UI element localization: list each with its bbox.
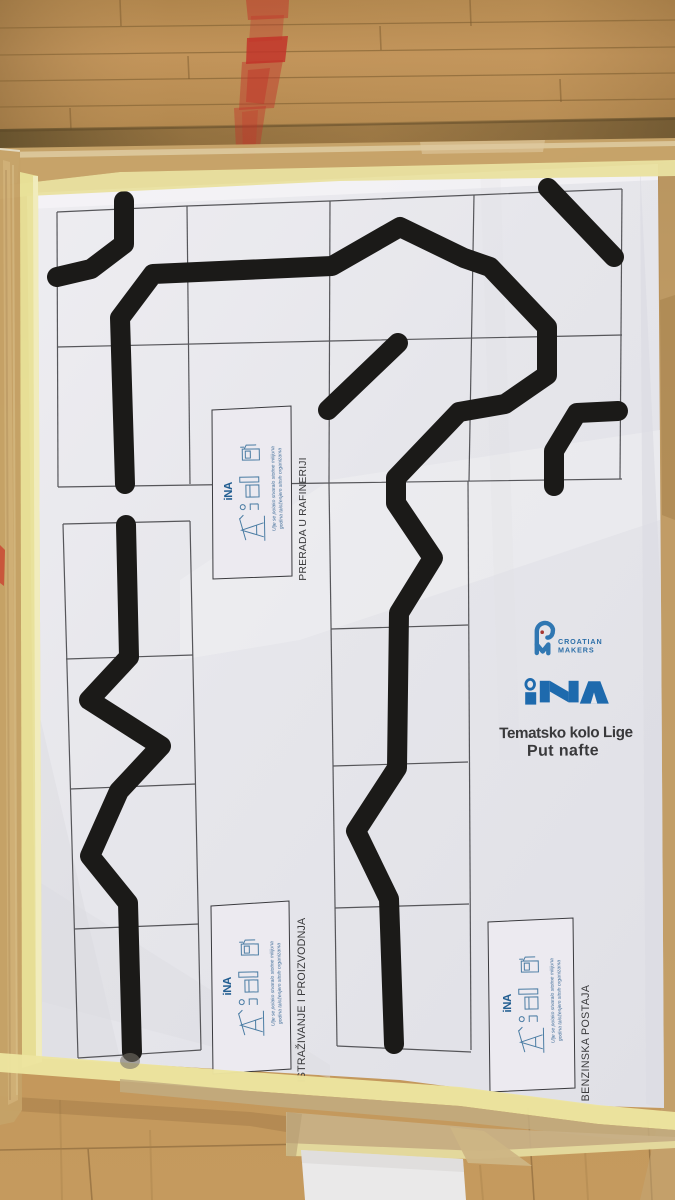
svg-text:MAKERS: MAKERS [558,646,595,655]
svg-text:PRERADA U RAFINERIJI: PRERADA U RAFINERIJI [298,457,309,581]
svg-text:iNA: iNA [222,977,234,996]
svg-text:iNA: iNA [223,482,235,501]
svg-text:ISTRAŽIVANJE I PROIZVODNJA: ISTRAŽIVANJE I PROIZVODNJA [295,917,308,1082]
svg-text:iNA: iNA [502,994,514,1013]
svg-text:Put nafte: Put nafte [527,742,599,760]
svg-text:BENZINSKA POSTAJA: BENZINSKA POSTAJA [580,984,592,1101]
svg-text:Tematsko kolo Lige: Tematsko kolo Lige [499,724,633,742]
